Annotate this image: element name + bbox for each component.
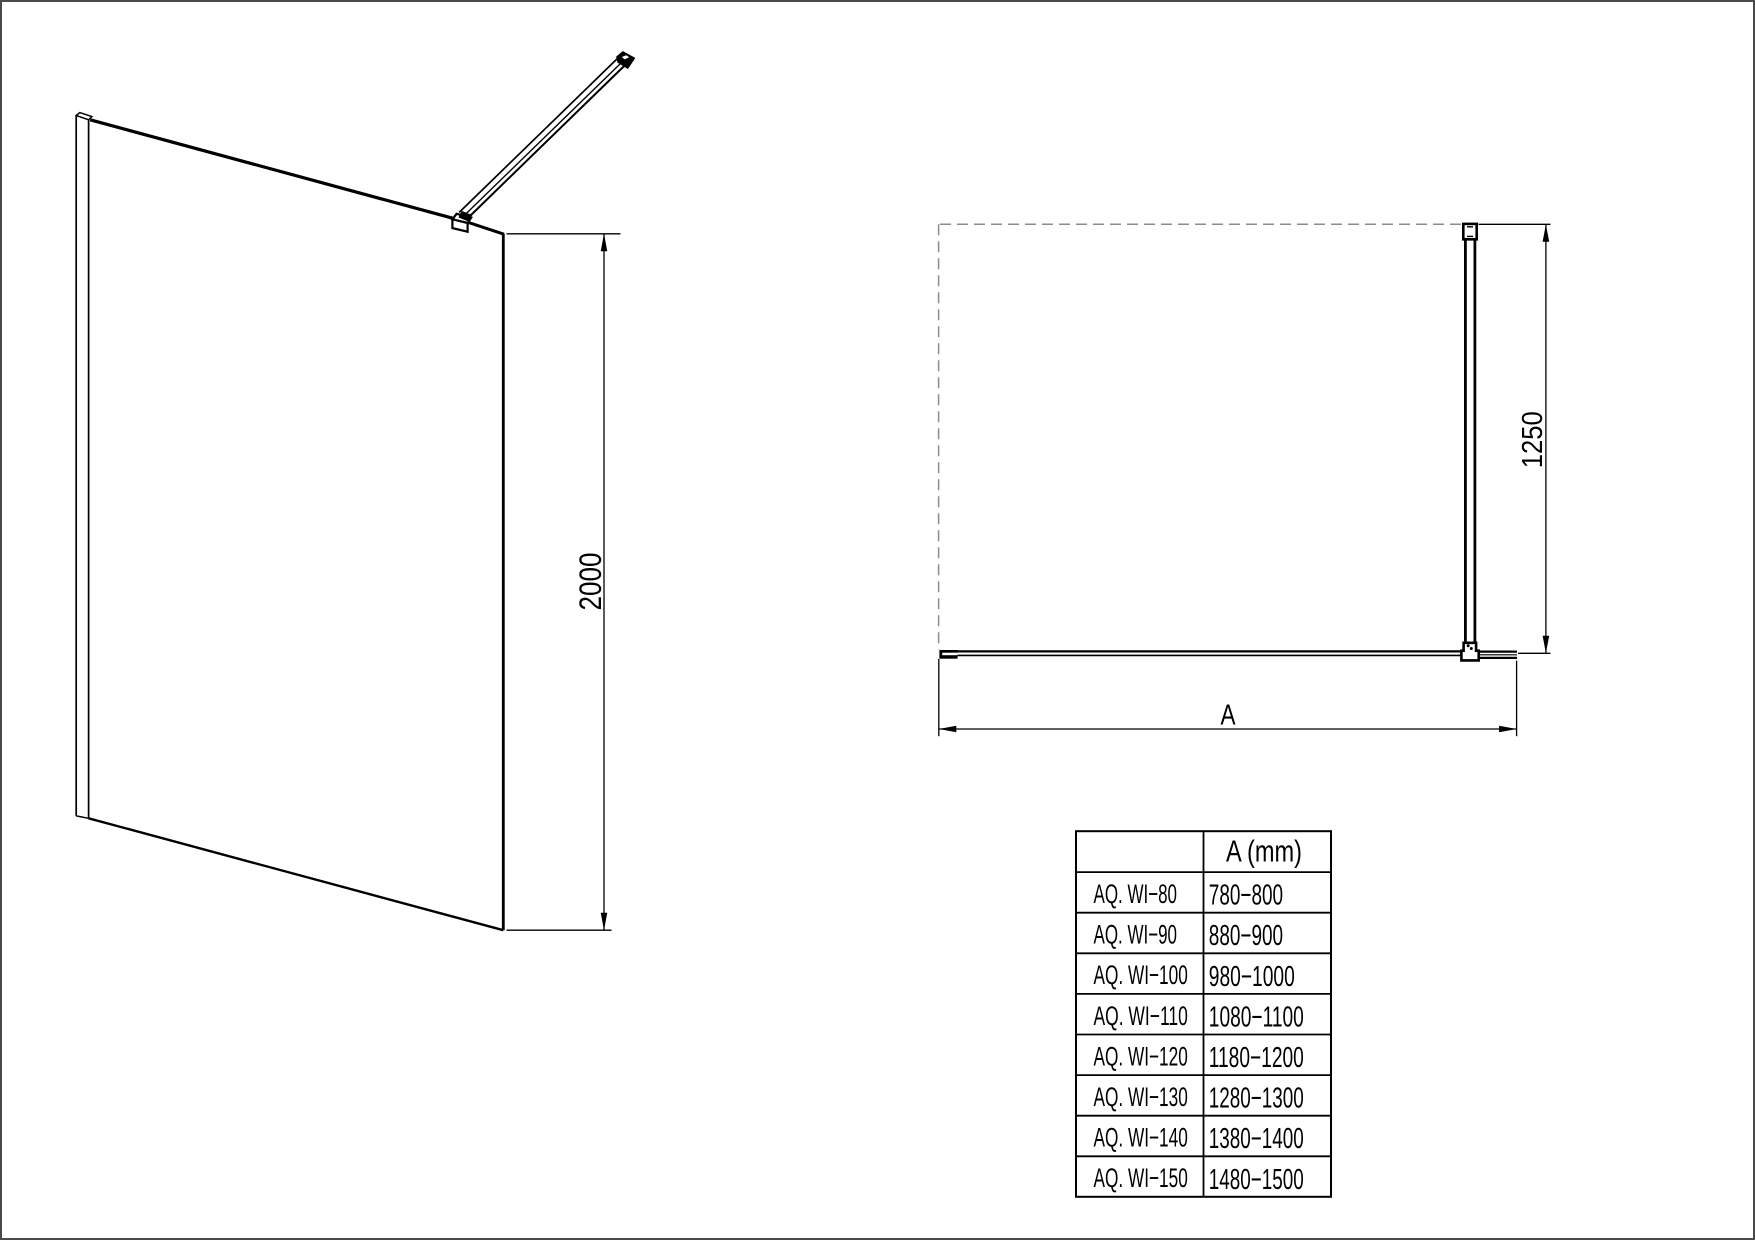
svg-text:1480−1500: 1480−1500 xyxy=(1209,1164,1304,1196)
svg-text:AQ. WI−150: AQ. WI−150 xyxy=(1094,1163,1188,1193)
svg-text:1080−1100: 1080−1100 xyxy=(1209,1001,1304,1033)
svg-text:A: A xyxy=(1221,700,1236,732)
svg-text:1280−1300: 1280−1300 xyxy=(1209,1083,1304,1115)
svg-text:AQ. WI−120: AQ. WI−120 xyxy=(1094,1041,1188,1071)
svg-text:AQ. WI−90: AQ. WI−90 xyxy=(1094,920,1178,950)
svg-text:2000: 2000 xyxy=(572,553,608,611)
svg-text:AQ. WI−110: AQ. WI−110 xyxy=(1094,1001,1188,1031)
svg-text:AQ. WI−100: AQ. WI−100 xyxy=(1094,960,1188,990)
svg-text:AQ. WI−140: AQ. WI−140 xyxy=(1094,1123,1188,1153)
svg-text:780−800: 780−800 xyxy=(1209,880,1283,912)
svg-text:980−1000: 980−1000 xyxy=(1209,961,1295,993)
svg-text:1380−1400: 1380−1400 xyxy=(1209,1123,1304,1155)
svg-text:1250: 1250 xyxy=(1517,411,1549,468)
svg-text:AQ. WI−80: AQ. WI−80 xyxy=(1094,879,1178,909)
svg-text:AQ. WI−130: AQ. WI−130 xyxy=(1094,1082,1188,1112)
svg-text:1180−1200: 1180−1200 xyxy=(1209,1042,1304,1074)
svg-text:A (mm): A (mm) xyxy=(1226,834,1302,869)
svg-text:880−900: 880−900 xyxy=(1209,920,1283,952)
